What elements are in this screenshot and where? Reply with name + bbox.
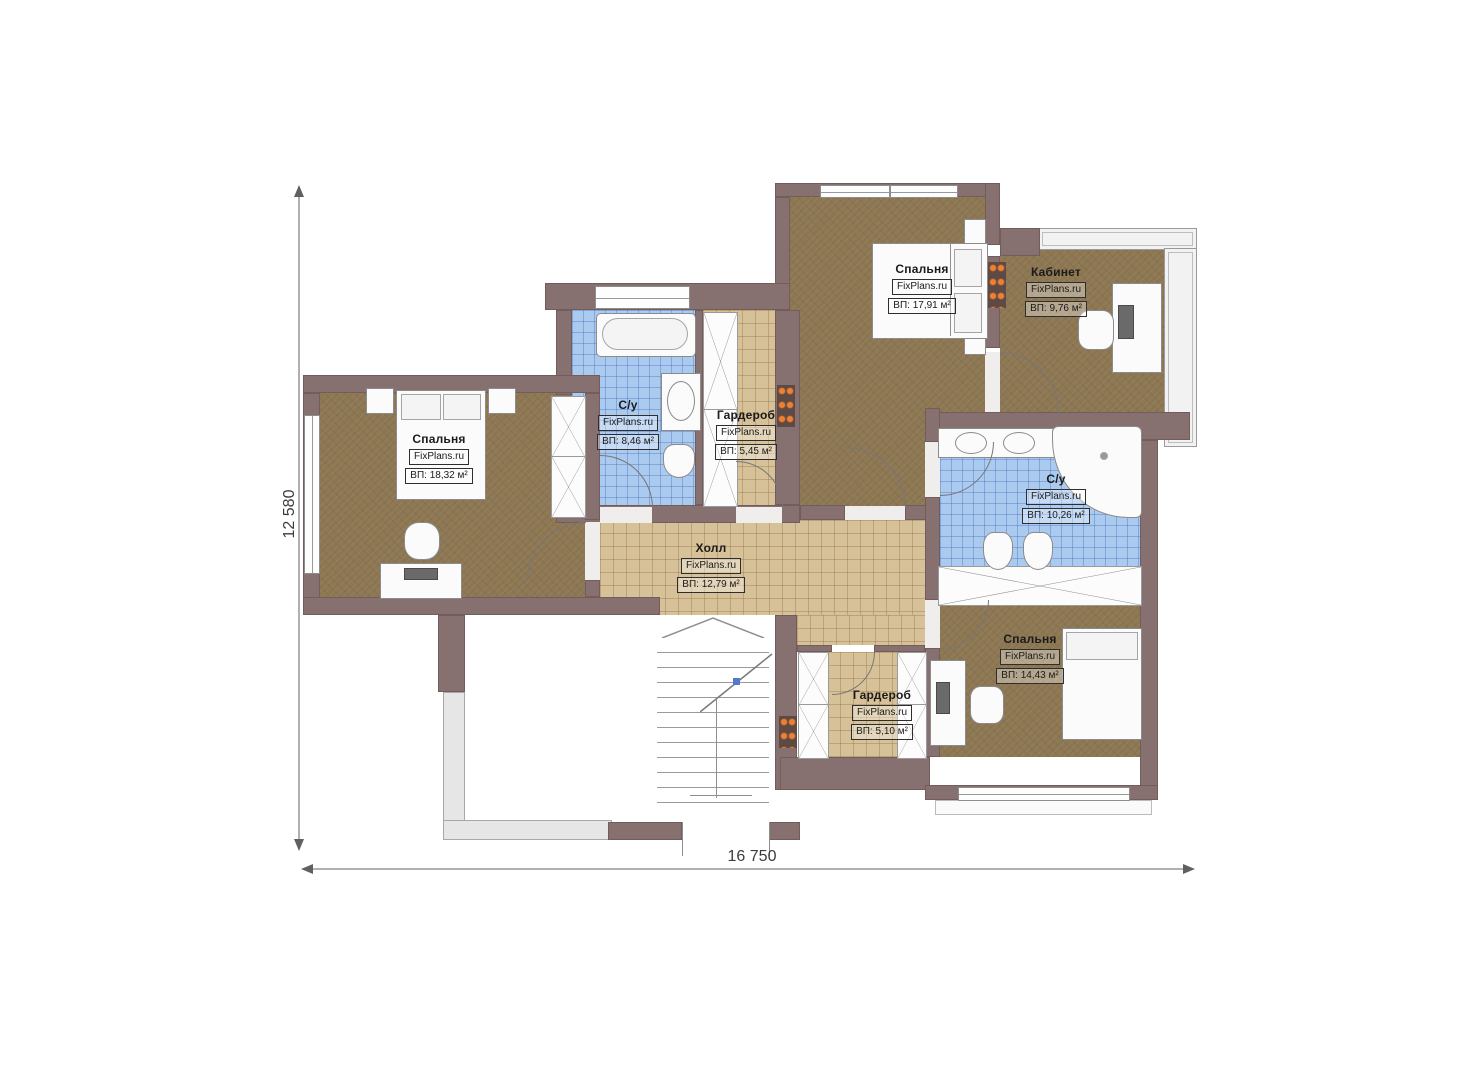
dimension-height-label: 12 580 — [281, 473, 299, 555]
dimension-lines — [0, 0, 1474, 1080]
dimension-width-label: 16 750 — [700, 848, 804, 866]
floor-plan: Спальня FixPlans.ru ВП: 17,91 м² Кабинет… — [0, 0, 1474, 1080]
